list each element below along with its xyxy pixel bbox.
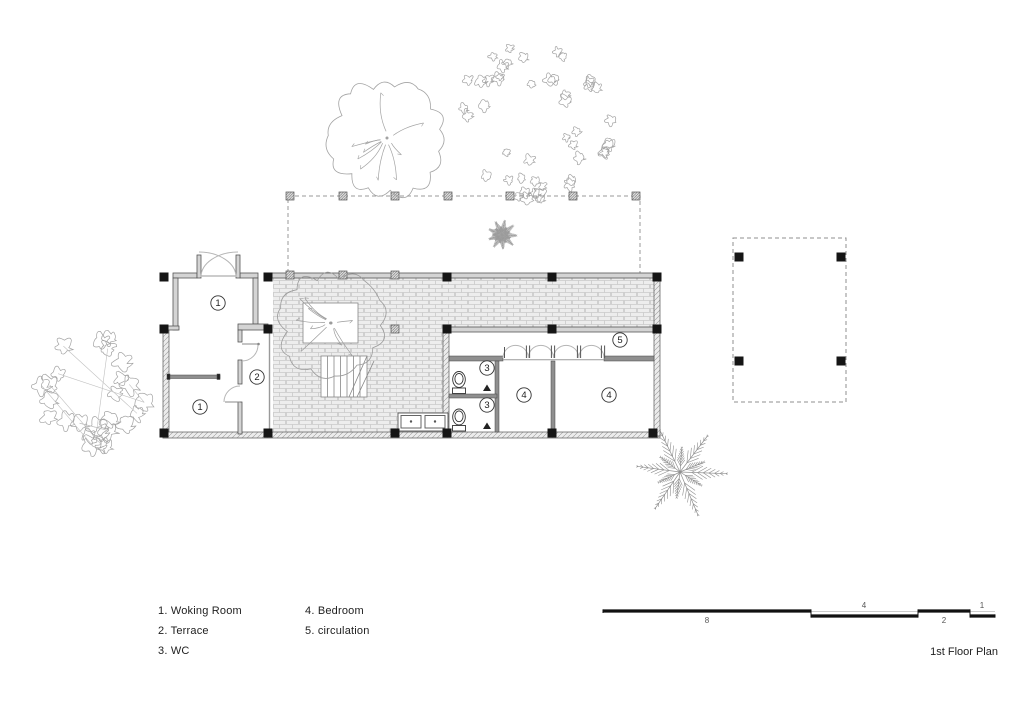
floor-plan-sheet: 11233445 8421 1. Woking Room 2. Terrace … [0, 0, 1024, 724]
washbasin-icon [398, 413, 448, 431]
grid-column-marker [506, 192, 514, 200]
room-number: 3 [484, 400, 489, 411]
corridor-door-swings [503, 345, 605, 358]
room-marker: 1 [211, 296, 225, 310]
room-number: 2 [254, 372, 259, 383]
column-marker [443, 273, 452, 282]
grid-column-marker [632, 192, 640, 200]
tree-icon [459, 44, 616, 205]
column-marker [391, 429, 400, 438]
tree-icon [326, 82, 444, 198]
column-marker [837, 253, 846, 262]
column-marker [653, 273, 662, 282]
floor-plan-drawing: 11233445 8421 [0, 0, 1024, 724]
scale-bar: 8421 [603, 601, 995, 625]
legend-item-wc: 3. WC [158, 645, 190, 657]
scale-label: 4 [862, 601, 867, 610]
column-marker [264, 273, 273, 282]
drawing-title: 1st Floor Plan [918, 646, 998, 658]
scale-label: 8 [705, 616, 710, 625]
tree-icon [31, 330, 153, 456]
column-marker [443, 429, 452, 438]
column-marker [443, 325, 452, 334]
room-number: 1 [197, 402, 202, 413]
grid-column-marker [444, 192, 452, 200]
column-marker [264, 325, 273, 334]
legend-item-terrace: 2. Terrace [158, 625, 209, 637]
scale-label: 1 [980, 601, 985, 610]
grid-column-marker [391, 271, 399, 279]
scale-label: 2 [942, 616, 947, 625]
grid-column-marker [391, 325, 399, 333]
column-marker [160, 273, 169, 282]
toilet-icon [453, 372, 466, 394]
room-marker: 2 [250, 370, 264, 384]
legend-item-bedroom: 4. Bedroom [305, 605, 364, 617]
room-marker: 4 [517, 388, 531, 402]
column-marker [160, 429, 169, 438]
column-marker [653, 325, 662, 334]
room-marker: 3 [480, 398, 494, 412]
tree-icon [636, 429, 727, 516]
toilet-icon [453, 409, 466, 431]
grid-column-marker [286, 271, 294, 279]
column-marker [649, 429, 658, 438]
pergola-outline [288, 196, 640, 273]
column-marker [160, 325, 169, 334]
carport-outline [733, 238, 846, 402]
room-number: 4 [606, 390, 611, 401]
room-number: 5 [617, 335, 622, 346]
grid-column-marker [569, 192, 577, 200]
room-marker: 3 [480, 361, 494, 375]
column-marker [735, 357, 744, 366]
room-marker: 4 [602, 388, 616, 402]
terrace-floor [273, 278, 654, 432]
room-marker: 1 [193, 400, 207, 414]
legend-item-woking-room: 1. Woking Room [158, 605, 242, 617]
room-number: 3 [484, 363, 489, 374]
column-marker [837, 357, 846, 366]
column-marker [548, 273, 557, 282]
column-marker [264, 429, 273, 438]
column-marker [548, 429, 557, 438]
grid-column-marker [286, 192, 294, 200]
column-marker [735, 253, 744, 262]
room-number: 4 [521, 390, 526, 401]
entrance-door-swing [199, 252, 238, 277]
legend-item-circulation: 5. circulation [305, 625, 370, 637]
column-marker [548, 325, 557, 334]
tree-icon [488, 220, 517, 249]
room-marker: 5 [613, 333, 627, 347]
grid-column-marker [339, 192, 347, 200]
room-number: 1 [215, 298, 220, 309]
